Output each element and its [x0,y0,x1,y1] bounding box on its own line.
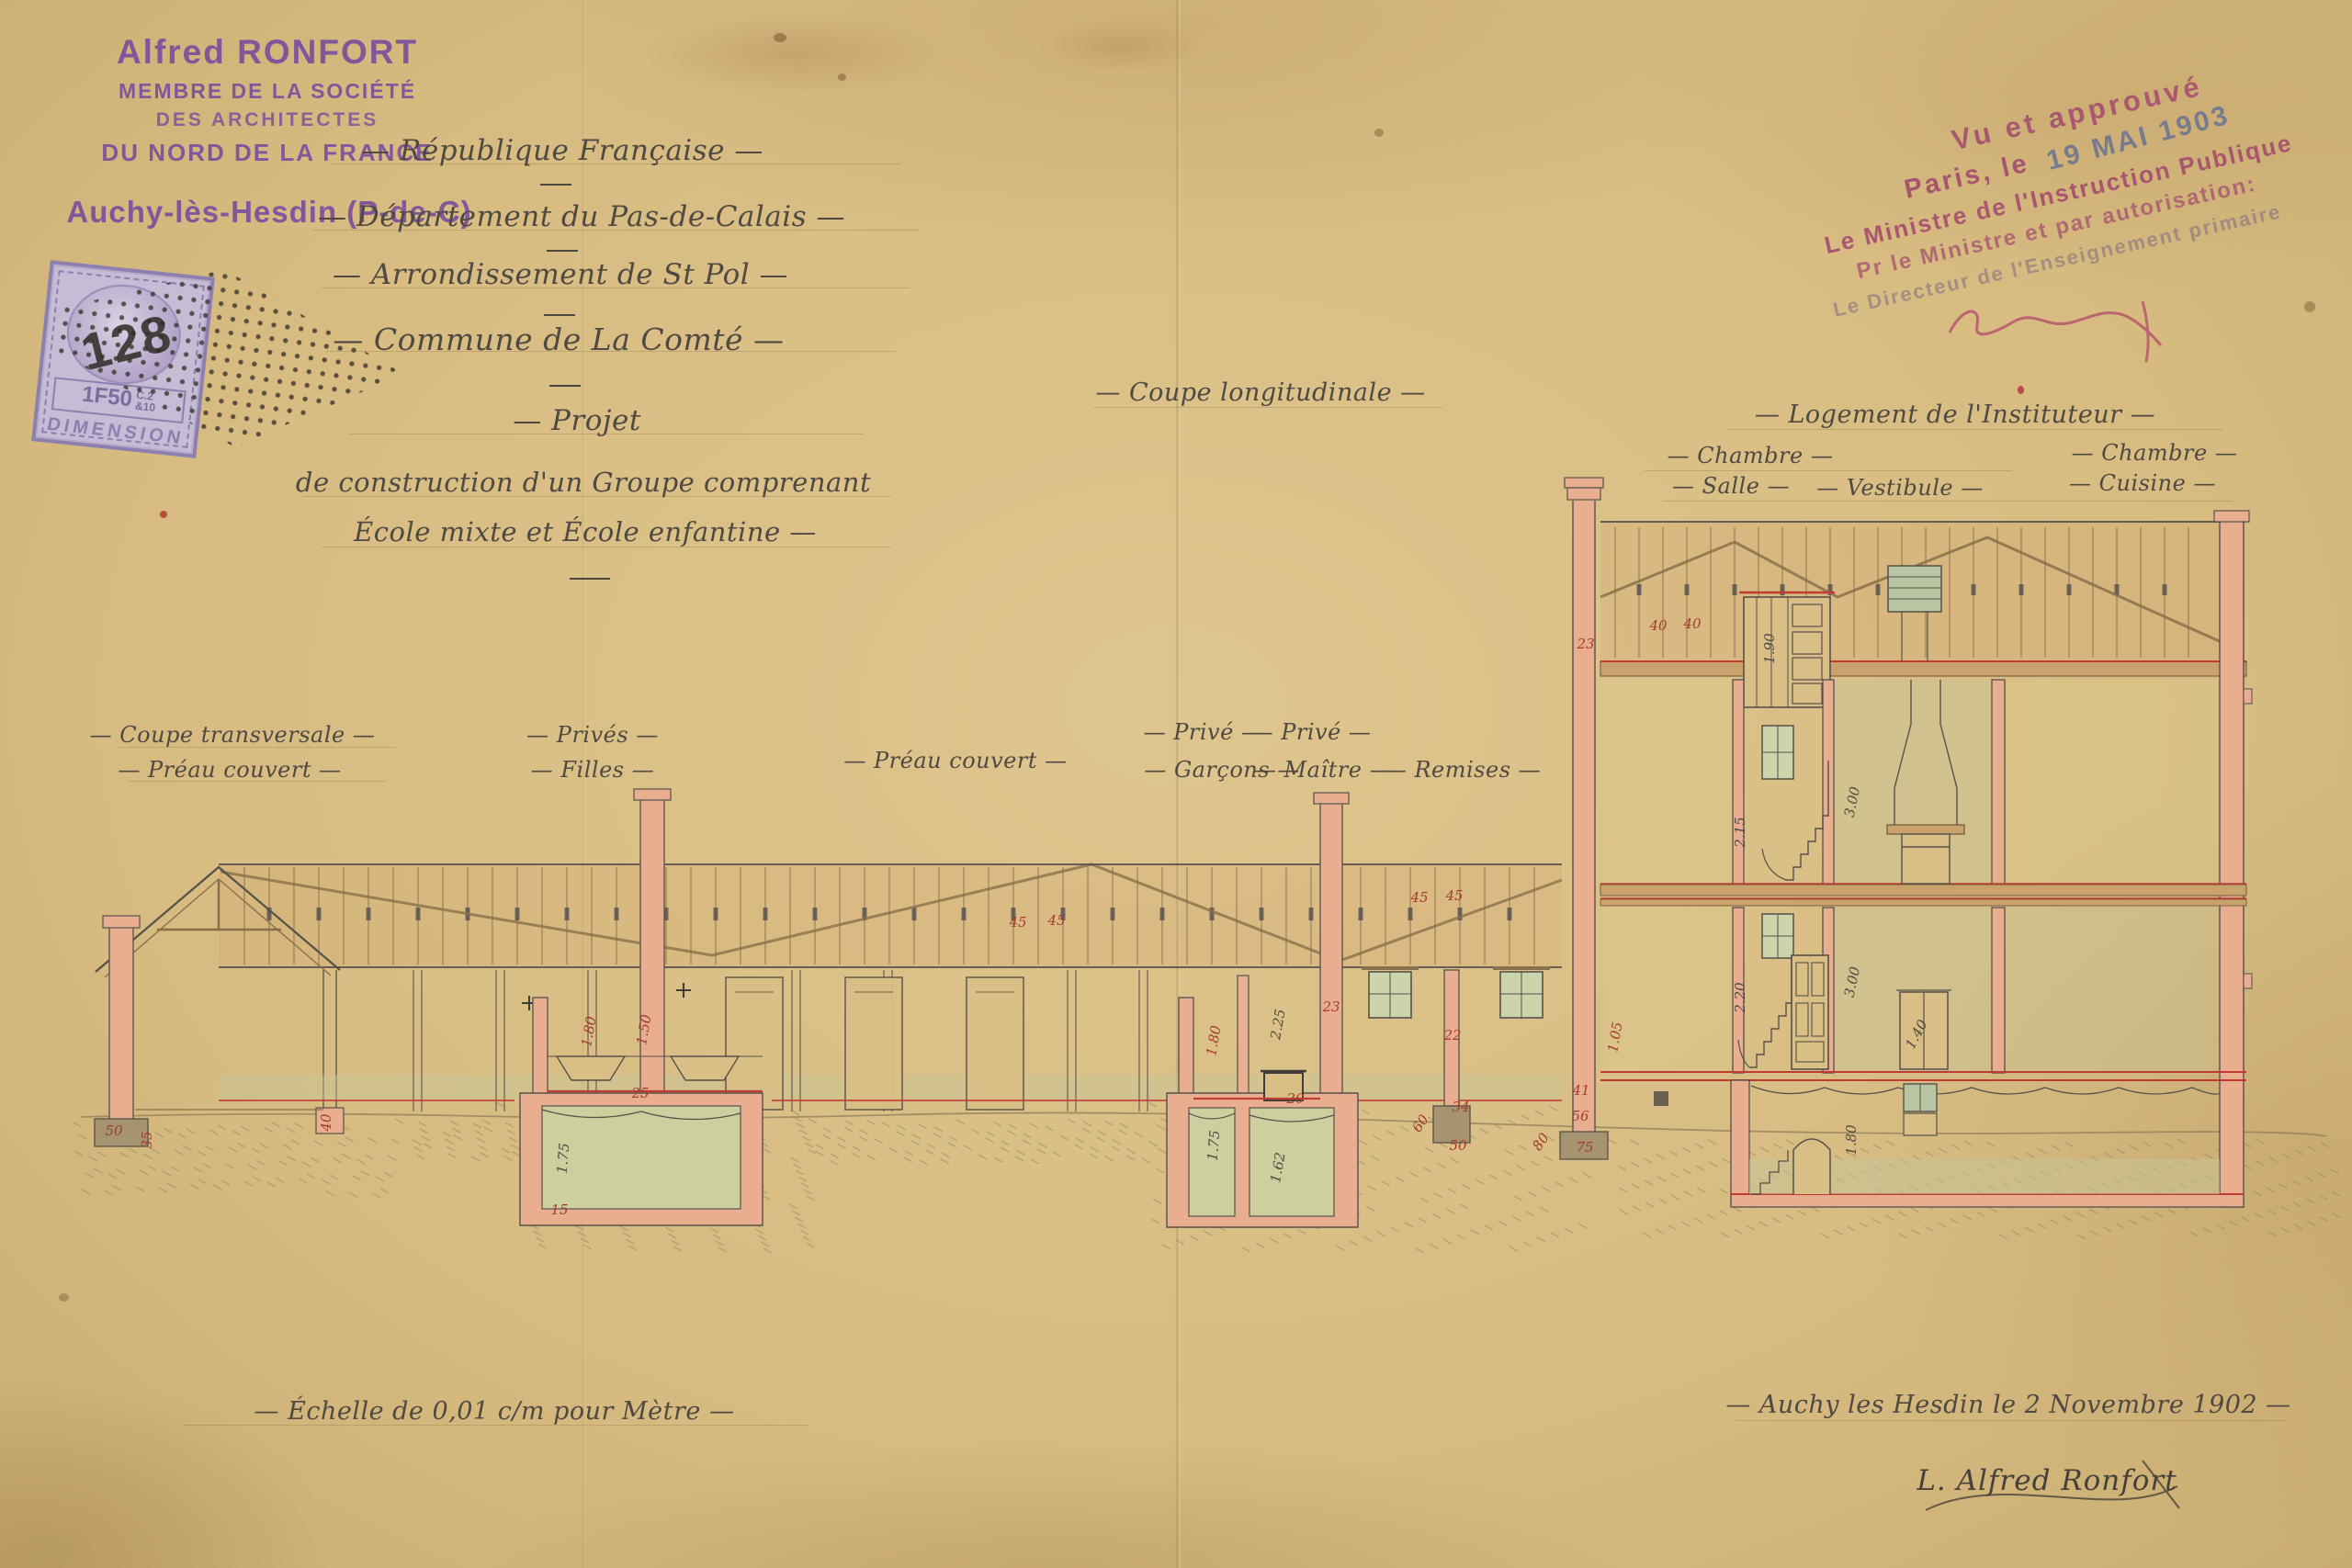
title-projet: — Projet [513,404,641,437]
room-wash [1604,908,1731,1071]
attic-floor [1600,661,2246,676]
cellar-slab [1731,1194,2244,1207]
attic-door [1739,592,1835,707]
title-arrondissement: — Arrondissement de St Pol — [333,258,788,291]
cellar-window [1904,1084,1937,1135]
gable-wall-masonry [109,926,133,1119]
chimney [1573,501,1595,1133]
fiscal-value-main: 1F50 [81,382,133,412]
label-chambre-left: — Chambre — [1668,443,1834,468]
dash-separator [547,250,578,252]
title-republique: — République Française — [361,134,763,167]
salle-wash [1604,680,1731,884]
place-date: — Auchy les Hesdin le 2 Novembre 1902 — [1725,1391,2290,1419]
preau-doors [726,977,1023,1110]
title-projet-line2: de construction d'un Groupe comprenant [296,467,871,498]
architect-name: Alfred RONFORT [51,33,483,72]
architect-stamp-line: DES ARCHITECTES [51,109,483,131]
room-wash [2007,908,2218,1071]
dash-separator [549,385,581,387]
drawing-sheet: Alfred RONFORT MEMBRE DE LA SOCIÉTÉ DES … [0,0,2352,1568]
label-salle: — Salle — [1672,473,1790,499]
label-coupe-longitudinale: — Coupe longitudinale — [1095,378,1425,407]
vent-shaft [640,797,664,1099]
label-filles: — Filles — [531,757,654,783]
footing [1560,1132,1608,1159]
label-preau-couvert-left: — Préau couvert — [118,757,341,783]
label-logement: — Logement de l'Instituteur — [1755,400,2155,429]
label-coupe-transversale: — Coupe transversale — [90,722,376,748]
floor-beam [1600,885,2246,896]
title-commune: — Commune de La Comté — [333,321,784,357]
remises-section [1362,968,1550,1143]
title-projet-line3: École mixte et École enfantine — [354,516,817,547]
post-footing [1433,1106,1470,1143]
architect-stamp-line: MEMBRE DE LA SOCIÉTÉ [51,79,483,104]
label-remises: — Remises — [1385,757,1541,783]
label-maitre: — Maître — [1254,757,1392,783]
footing [95,1119,148,1146]
stair-window [1762,726,1793,958]
vent-shaft [1320,801,1342,1100]
room-wash [2007,680,2218,884]
basement-vent [1654,1091,1668,1106]
floor-beam [1600,899,2246,906]
dash-separator [540,184,571,186]
outer-wall [2220,520,2244,1207]
fiscal-value-sub: &10 [134,400,155,414]
label-cuisine: — Cuisine — [2069,470,2216,496]
cellar-vault-arcs [1751,1086,2220,1094]
label-preau-couvert-center: — Préau couvert — [843,748,1067,773]
architect-signature: L. Alfred Ronfort [1917,1464,2177,1497]
dash-separator [570,578,610,580]
label-prive-maitre-title: — Privé — [1251,719,1372,745]
logement-section [1560,478,2252,1207]
label-prives: — Privés — [526,722,659,748]
post-footing [316,1108,344,1134]
label-prive-garcons-title: — Privé — [1144,719,1264,745]
dash-separator [544,314,575,316]
cellar-arch-door [1793,1139,1830,1194]
title-departement: — Département du Pas-de-Calais — [318,200,845,233]
minister-signature-scribble [1950,301,2161,362]
stove [1264,1073,1303,1100]
cellar-wall [1731,1080,1749,1205]
vestibule-door [1792,955,1828,1069]
label-chambre-right: — Chambre — [2072,440,2238,466]
staircase-ground [1749,955,1792,1067]
ground-floor-line [1600,1072,2246,1080]
label-vestibule: — Vestibule — [1816,475,1983,501]
remises-window [1362,968,1419,1018]
remises-post [1444,970,1459,1106]
remises-window [1493,968,1550,1018]
scale-note: — Échelle de 0,01 c/m pour Mètre — [254,1397,735,1426]
